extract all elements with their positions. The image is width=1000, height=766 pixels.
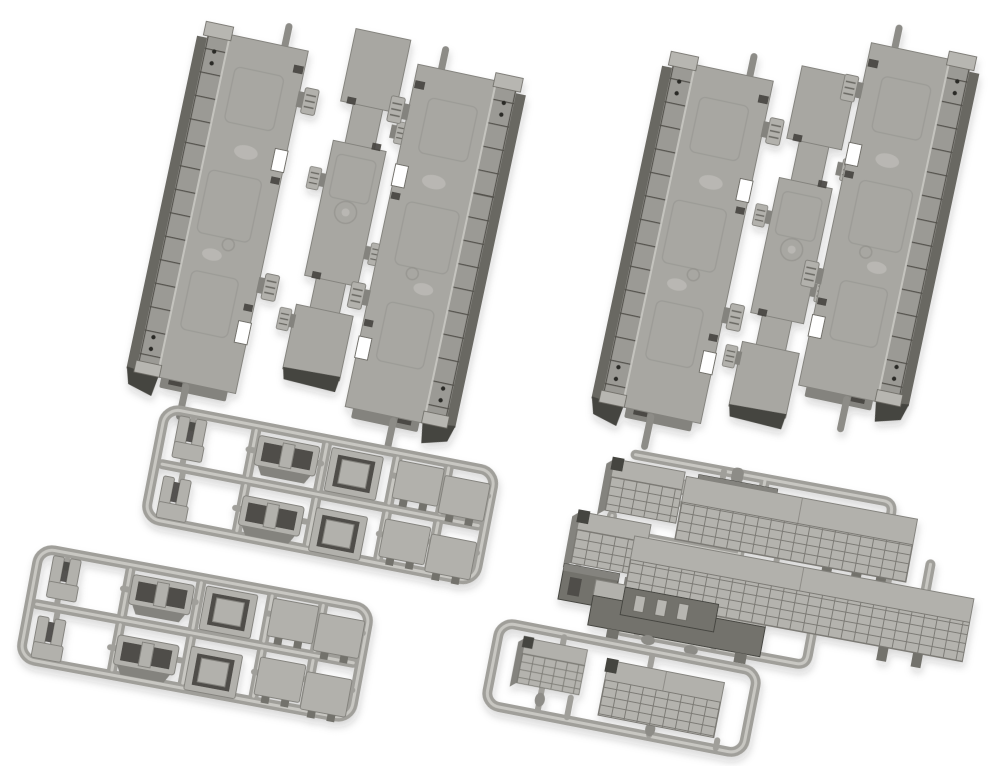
product-photo (0, 0, 1000, 766)
scene-svg (0, 0, 1000, 766)
